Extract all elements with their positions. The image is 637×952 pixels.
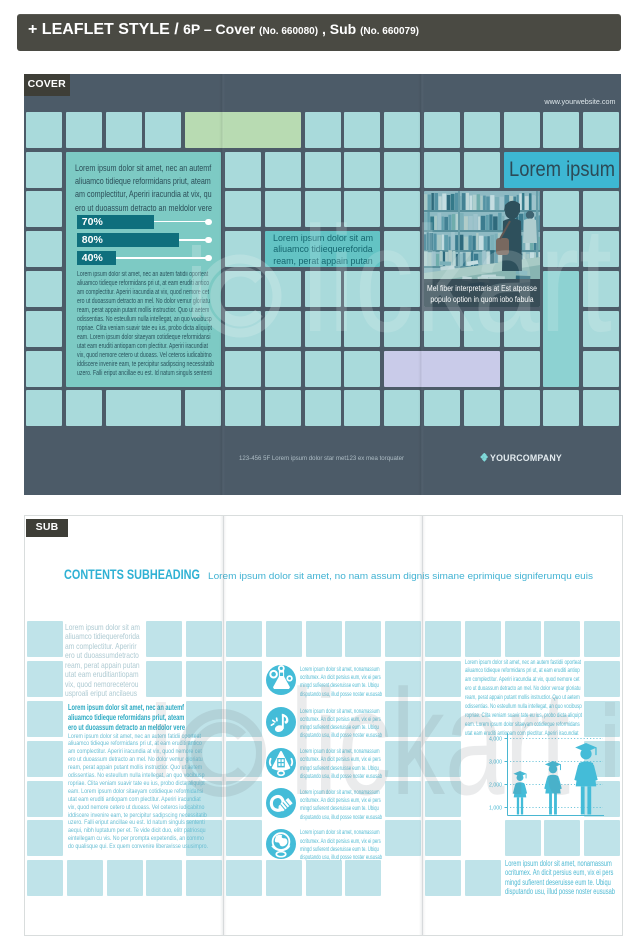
svg-text:lickart: lickart	[290, 676, 570, 811]
svg-text:lickart: lickart	[302, 219, 612, 344]
